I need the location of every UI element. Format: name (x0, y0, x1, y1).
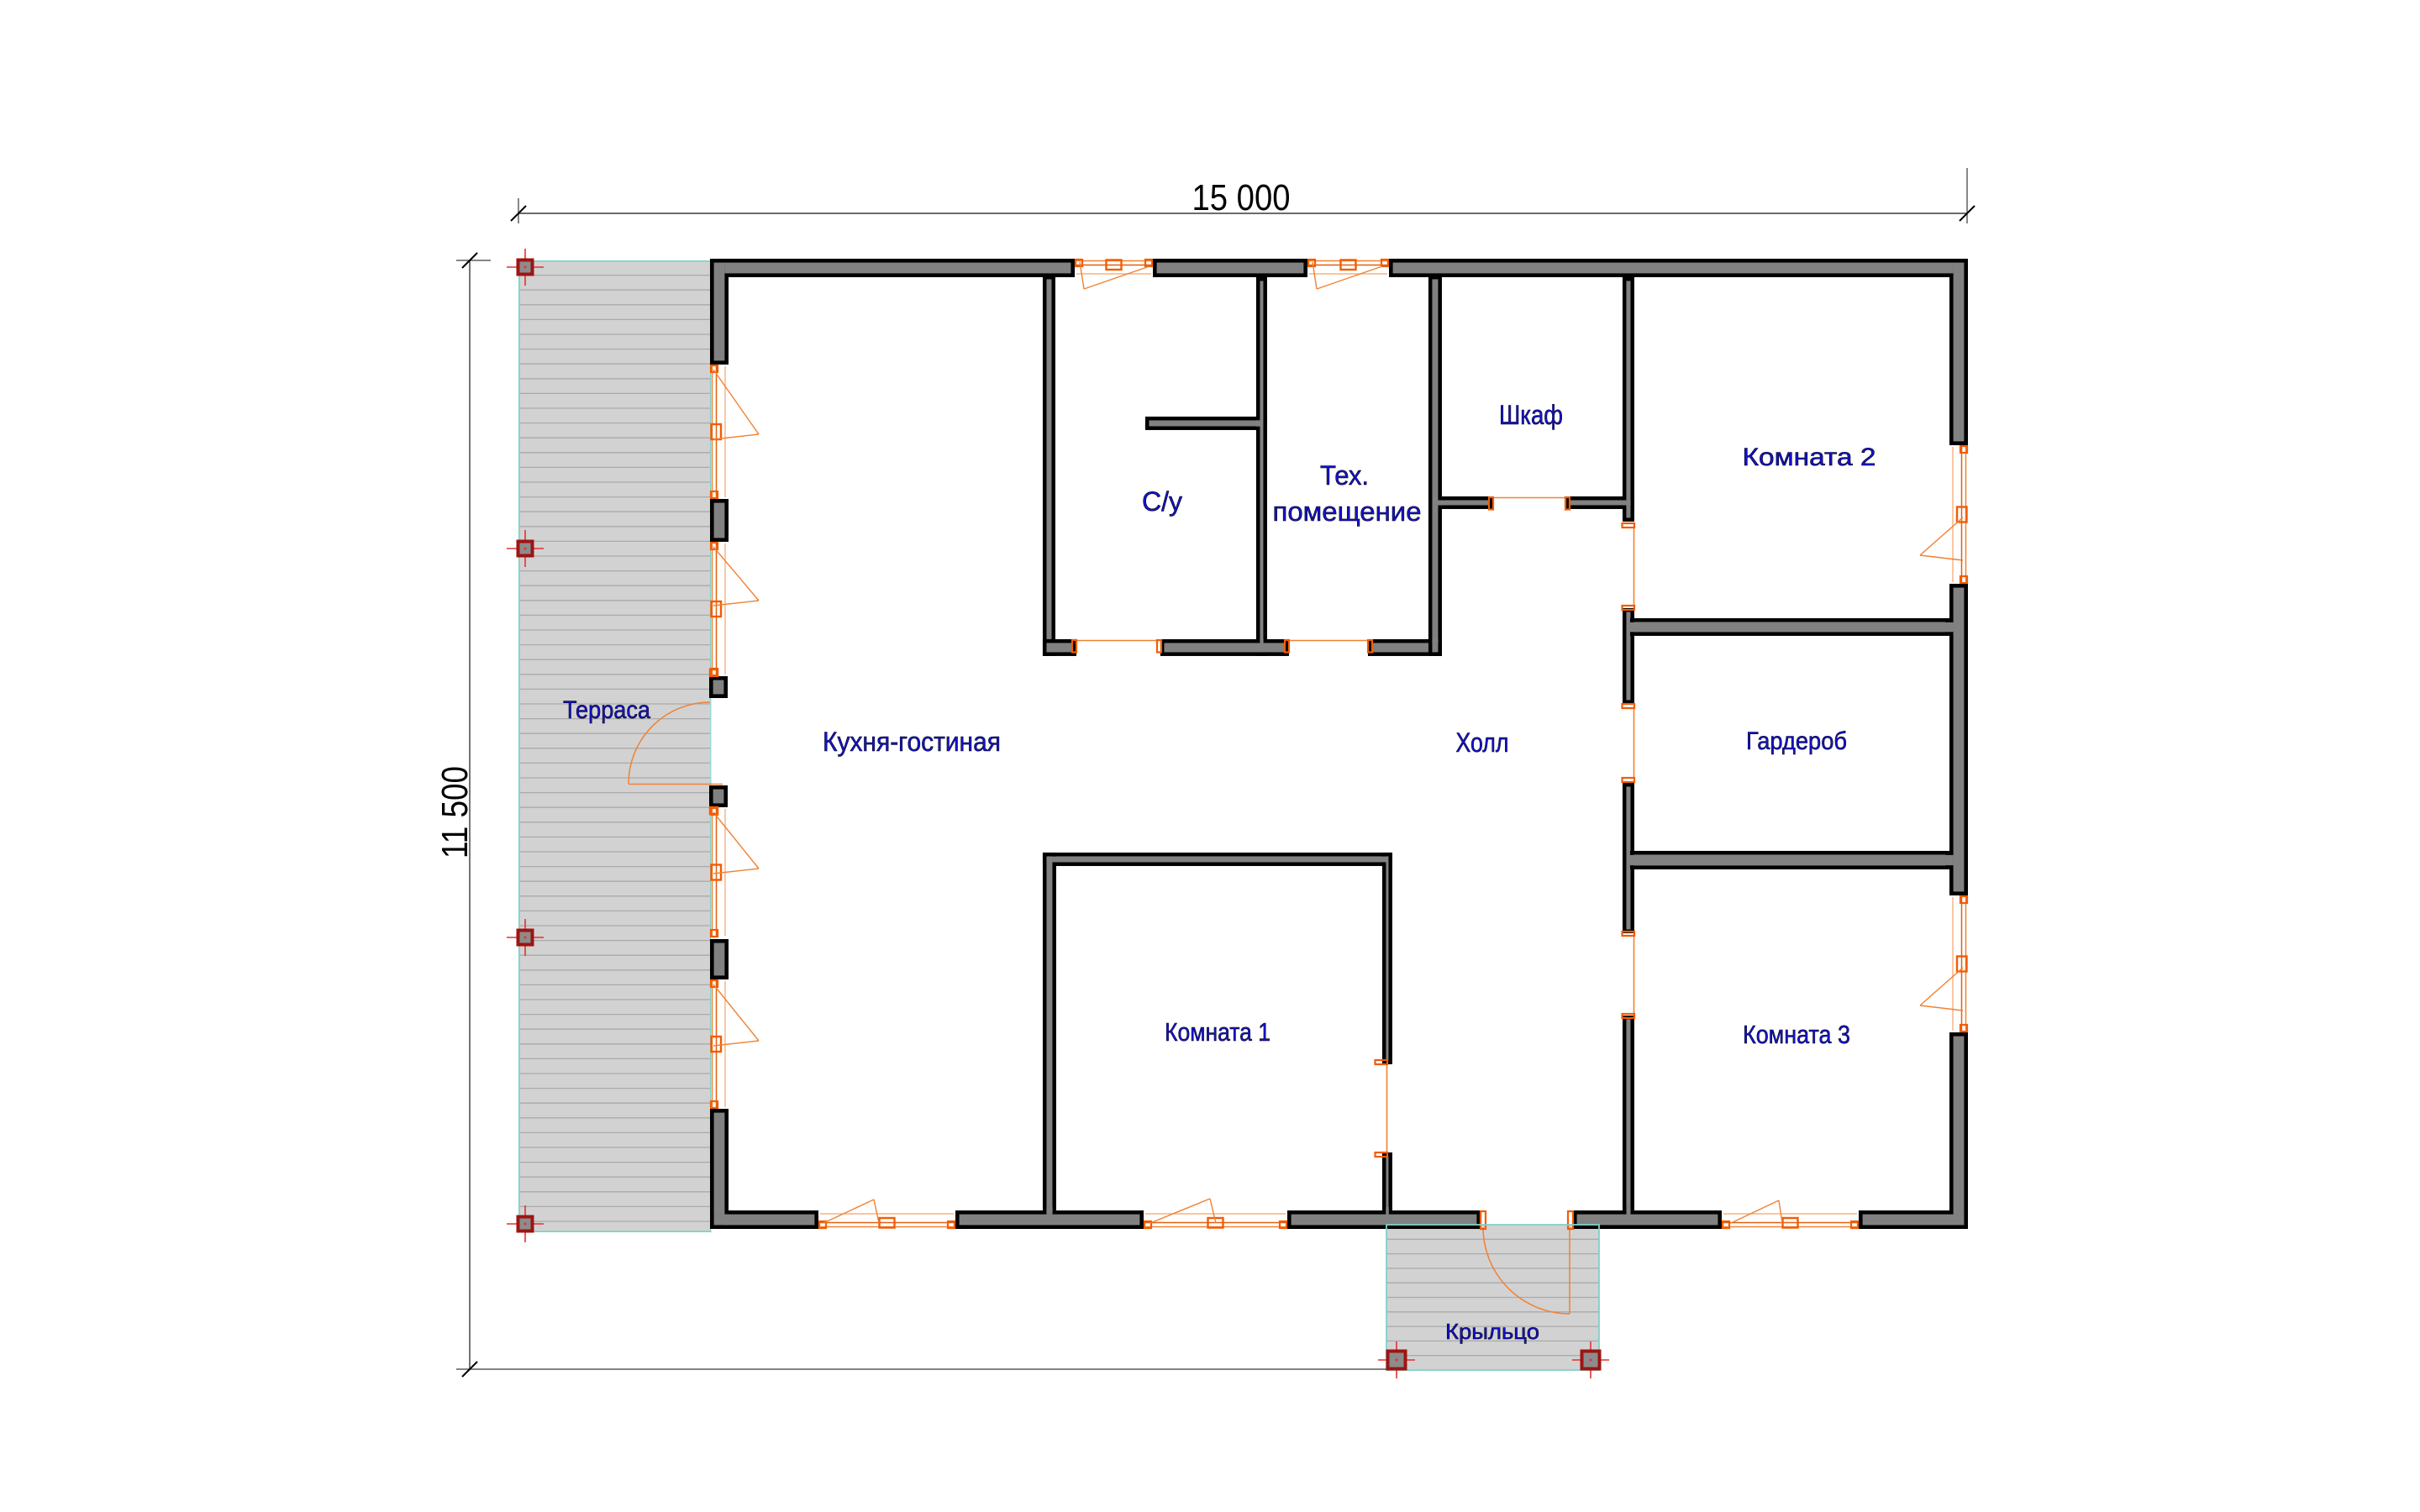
svg-text:15 000: 15 000 (1192, 177, 1291, 218)
svg-text:Крыльцо: Крыльцо (1445, 1319, 1539, 1344)
svg-text:Шкаф: Шкаф (1499, 400, 1563, 430)
svg-text:помещение: помещение (1273, 496, 1422, 527)
svg-text:Кухня-гостиная: Кухня-гостиная (823, 727, 1001, 757)
svg-text:Комната 3: Комната 3 (1743, 1020, 1850, 1049)
svg-text:Комната 2: Комната 2 (1743, 444, 1876, 471)
svg-text:Терраса: Терраса (563, 696, 650, 724)
svg-text:С/у: С/у (1142, 486, 1182, 517)
svg-text:Комната 1: Комната 1 (1165, 1017, 1270, 1047)
svg-text:Гардероб: Гардероб (1746, 727, 1847, 755)
svg-text:11 500: 11 500 (434, 766, 476, 858)
svg-text:Холл: Холл (1456, 727, 1509, 758)
svg-text:Тех.: Тех. (1320, 460, 1369, 491)
